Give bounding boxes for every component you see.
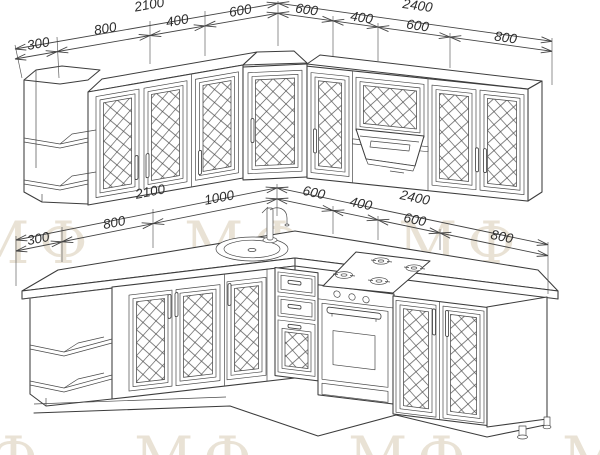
dim-label: 600	[228, 1, 253, 20]
door-handle	[199, 150, 202, 175]
upper-door	[96, 89, 139, 197]
dim-label: 800	[493, 29, 518, 47]
dim-label: 600	[405, 17, 430, 35]
upper-right-run	[307, 66, 528, 201]
dim-label: 300	[26, 34, 51, 53]
upper-corner-cabinet	[243, 64, 307, 180]
base-door	[278, 320, 315, 377]
drawer-unit	[275, 268, 318, 381]
base-door	[443, 306, 484, 423]
door-handle	[135, 155, 138, 180]
base-door	[176, 285, 220, 386]
dim-label: 2400	[401, 0, 434, 15]
dim-label: 2100	[132, 0, 166, 15]
upper-door	[311, 73, 349, 177]
upper-door	[144, 81, 187, 189]
door-handle	[476, 148, 479, 172]
upper-right-side-panel	[528, 81, 542, 201]
adjustable-foot	[543, 417, 551, 429]
adjustable-foot	[518, 426, 528, 439]
dim-label: 400	[165, 11, 190, 30]
door-handle	[446, 310, 449, 336]
door-handle	[433, 309, 436, 335]
watermark-text-2: МФ МФ МФ МФ	[0, 424, 600, 455]
base-door	[129, 290, 172, 391]
upper-door	[432, 85, 476, 190]
base-left-run	[112, 266, 295, 399]
base-door	[396, 300, 436, 417]
upper-door	[480, 90, 524, 195]
kitchen-drawing: МФ МФ МФ МФ МФ МФ МФ МФ	[0, 0, 600, 455]
oven	[318, 285, 394, 404]
door-handle	[175, 292, 178, 316]
door-handle	[228, 283, 231, 305]
base-two-door-cabinet	[393, 296, 487, 425]
dim-label: 400	[349, 9, 374, 27]
door-handle	[484, 148, 487, 172]
dim-label: 600	[294, 1, 319, 19]
dim-label: 800	[93, 19, 118, 38]
base-open-corner-shelf	[22, 288, 112, 406]
door-handle	[168, 294, 171, 318]
upper-door	[196, 72, 239, 180]
door-handle	[314, 129, 317, 153]
dim-label: 1000	[203, 187, 236, 208]
door-handle	[146, 153, 149, 178]
dim-label: 600	[301, 183, 327, 202]
door-handle	[251, 118, 254, 142]
base-right-side-panel	[487, 297, 547, 427]
upper-cabinets-view	[24, 51, 542, 205]
base-corner-door	[227, 277, 266, 379]
